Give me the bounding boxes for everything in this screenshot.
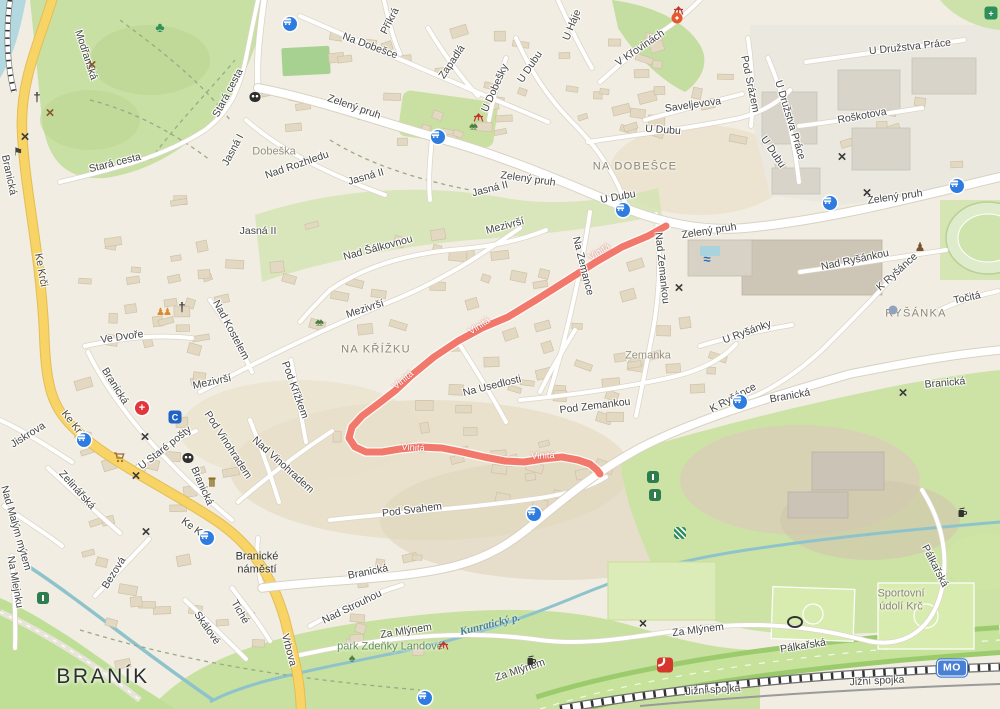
- map-canvas[interactable]: ModřanskáBranickáStará cestaStará cestaJ…: [0, 0, 1000, 709]
- masks-icon[interactable]: [250, 92, 261, 102]
- bus-icon[interactable]: [527, 507, 541, 521]
- map-base: [0, 0, 1000, 709]
- xdark-icon[interactable]: ×: [863, 186, 872, 201]
- xbrown-icon[interactable]: ×: [88, 58, 97, 73]
- church-icon[interactable]: †: [33, 91, 40, 104]
- dot-icon[interactable]: [889, 306, 898, 315]
- xdark-icon[interactable]: ×: [675, 281, 684, 296]
- tree-icon[interactable]: ♠: [349, 652, 355, 664]
- bankc-icon[interactable]: C: [169, 411, 182, 424]
- xdark-icon[interactable]: ×: [141, 430, 150, 445]
- motorway-badge: MO: [937, 660, 967, 677]
- statue-icon[interactable]: ♟: [915, 241, 926, 253]
- recycle-icon[interactable]: [674, 527, 686, 539]
- xdark-icon[interactable]: ×: [132, 469, 141, 484]
- greenhouse-icon[interactable]: [647, 471, 659, 483]
- windmill-icon[interactable]: ×: [639, 616, 647, 630]
- xdark-icon[interactable]: ×: [838, 150, 847, 165]
- people-icon[interactable]: ♟♟: [156, 308, 170, 318]
- clover-icon[interactable]: ♣: [155, 20, 164, 34]
- carousel-icon[interactable]: [672, 13, 683, 24]
- greencross-icon[interactable]: +: [985, 7, 998, 20]
- trees-icon[interactable]: ♠♠: [315, 318, 321, 329]
- bus-icon[interactable]: [431, 130, 445, 144]
- greenhouse-icon[interactable]: [649, 489, 661, 501]
- trees-icon[interactable]: ♠♠: [469, 122, 475, 133]
- hospital-icon[interactable]: +: [135, 401, 149, 415]
- bus-icon[interactable]: [283, 17, 297, 31]
- bus-icon[interactable]: [616, 203, 630, 217]
- fuel-icon[interactable]: [657, 658, 673, 673]
- church-icon[interactable]: †: [178, 301, 185, 314]
- xbrown-icon[interactable]: ×: [46, 106, 55, 121]
- flag-icon[interactable]: ⚑: [13, 148, 23, 159]
- museum-icon[interactable]: Ⅲ: [209, 478, 216, 489]
- masks-icon[interactable]: [183, 453, 194, 463]
- tram-icon[interactable]: [77, 433, 91, 447]
- xdark-icon[interactable]: ×: [899, 386, 908, 401]
- bus-icon[interactable]: [418, 691, 432, 705]
- xdark-icon[interactable]: ×: [142, 525, 151, 540]
- swim-icon[interactable]: ≈: [703, 253, 710, 266]
- bus-icon[interactable]: [823, 196, 837, 210]
- xdark-icon[interactable]: ×: [21, 130, 30, 145]
- bus-icon[interactable]: [950, 179, 964, 193]
- motorway-badge-label: MO: [943, 662, 961, 674]
- greenhouse-icon[interactable]: [37, 592, 49, 604]
- stadium-icon[interactable]: [787, 616, 803, 628]
- bus-icon[interactable]: [200, 531, 214, 545]
- bus-icon[interactable]: [733, 395, 747, 409]
